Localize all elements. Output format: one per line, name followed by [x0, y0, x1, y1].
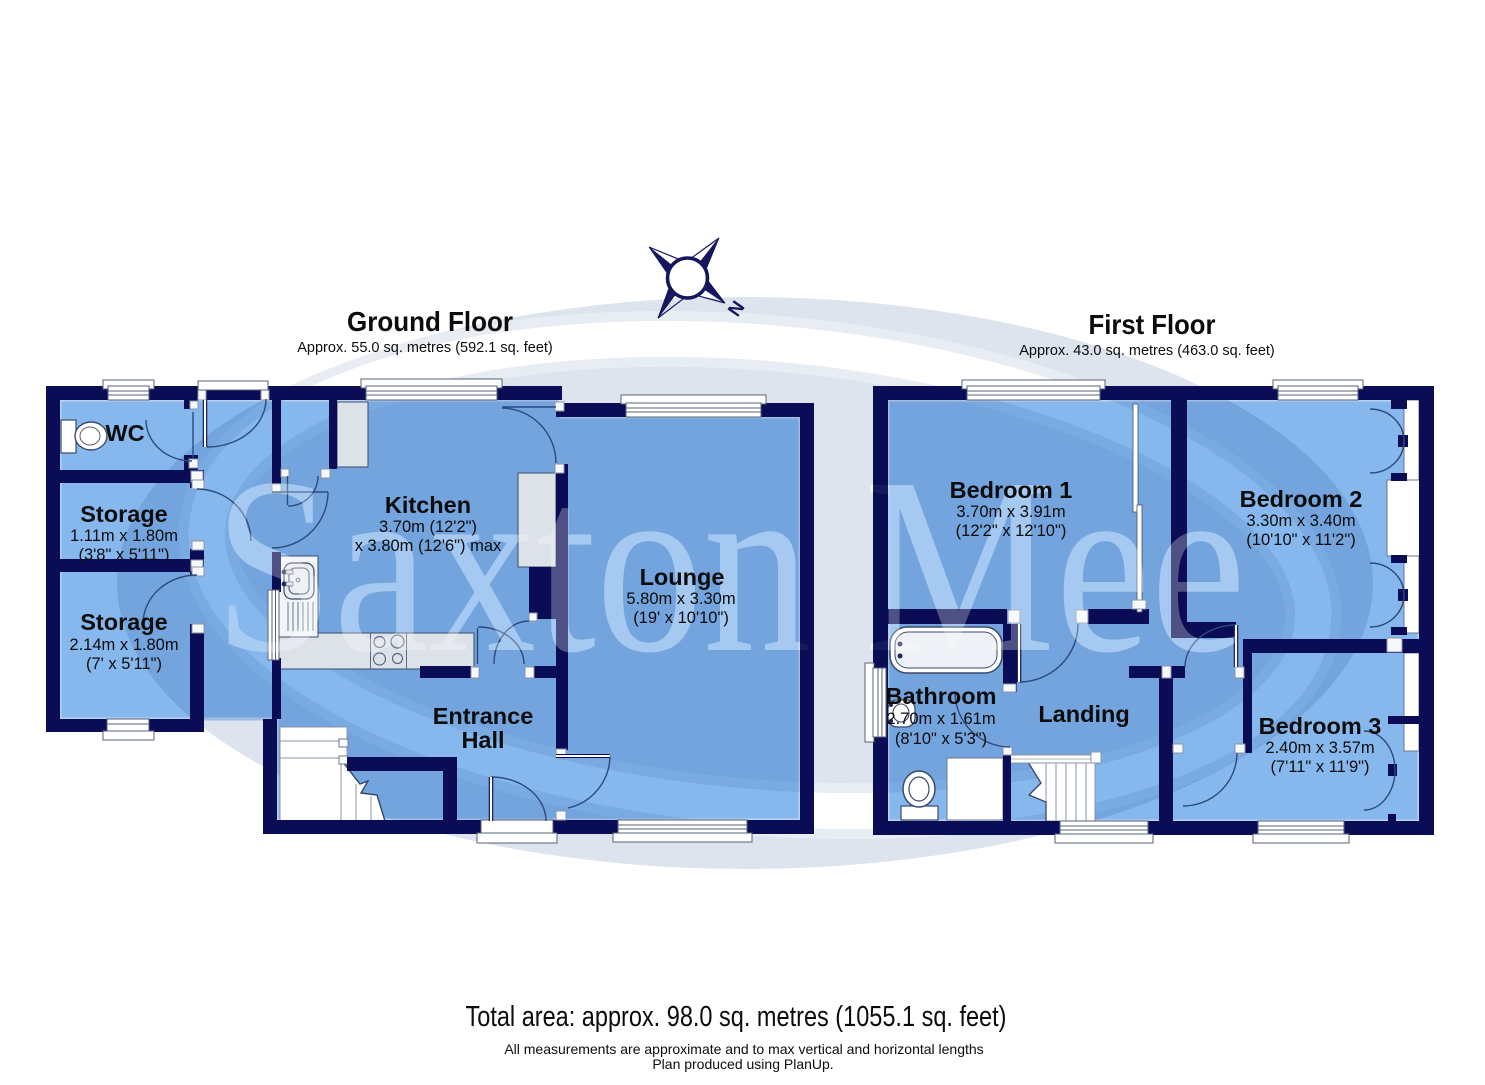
svg-text:(8'10" x 5'3"): (8'10" x 5'3")	[895, 730, 987, 748]
svg-text:3.30m x 3.40m: 3.30m x 3.40m	[1246, 512, 1355, 530]
svg-text:Lounge: Lounge	[640, 564, 725, 590]
svg-text:Total area: approx. 98.0 sq. m: Total area: approx. 98.0 sq. metres (105…	[466, 1001, 1007, 1033]
svg-text:Approx. 55.0 sq. metres (592.1: Approx. 55.0 sq. metres (592.1 sq. feet)	[297, 340, 553, 356]
svg-text:Bedroom 2: Bedroom 2	[1240, 486, 1363, 512]
svg-text:2.70m x 1.61m: 2.70m x 1.61m	[886, 710, 995, 728]
svg-text:2.40m x 3.57m: 2.40m x 3.57m	[1265, 739, 1374, 757]
svg-text:5.80m x 3.30m: 5.80m x 3.30m	[626, 590, 735, 608]
svg-text:Storage: Storage	[80, 501, 168, 527]
svg-text:Kitchen: Kitchen	[385, 492, 471, 518]
svg-text:Saxton Mee: Saxton Mee	[214, 425, 1246, 705]
svg-text:Bedroom 1: Bedroom 1	[950, 477, 1073, 503]
svg-text:Storage: Storage	[80, 609, 168, 635]
svg-text:2.14m x 1.80m: 2.14m x 1.80m	[69, 636, 178, 654]
svg-text:(12'2" x 12'10"): (12'2" x 12'10")	[956, 522, 1067, 540]
svg-text:(10'10" x 11'2"): (10'10" x 11'2")	[1246, 531, 1355, 549]
svg-text:(3'8" x 5'11"): (3'8" x 5'11")	[78, 546, 169, 564]
svg-text:Approx. 43.0 sq. metres (463.0: Approx. 43.0 sq. metres (463.0 sq. feet)	[1019, 343, 1275, 359]
svg-text:x 3.80m (12'6") max: x 3.80m (12'6") max	[355, 537, 502, 555]
svg-text:Hall: Hall	[461, 727, 504, 753]
svg-text:(7'11" x 11'9"): (7'11" x 11'9")	[1270, 758, 1369, 776]
svg-text:(7' x 5'11"): (7' x 5'11")	[86, 655, 162, 673]
svg-text:3.70m x 3.91m: 3.70m x 3.91m	[956, 503, 1065, 521]
svg-text:WC: WC	[105, 420, 144, 446]
svg-text:Entrance: Entrance	[433, 703, 534, 729]
svg-text:1.11m x 1.80m: 1.11m x 1.80m	[70, 527, 178, 545]
svg-text:Bathroom: Bathroom	[886, 683, 997, 709]
svg-text:(19' x 10'10"): (19' x 10'10")	[633, 609, 729, 627]
svg-text:Ground Floor: Ground Floor	[347, 306, 513, 337]
svg-text:First Floor: First Floor	[1089, 309, 1216, 340]
svg-text:All measurements are approxima: All measurements are approximate and to …	[504, 1041, 983, 1057]
svg-text:3.70m (12'2"): 3.70m (12'2")	[379, 518, 477, 536]
svg-text:Plan produced using PlanUp.: Plan produced using PlanUp.	[652, 1056, 833, 1072]
svg-text:Bedroom 3: Bedroom 3	[1259, 713, 1382, 739]
svg-text:Landing: Landing	[1038, 701, 1129, 727]
